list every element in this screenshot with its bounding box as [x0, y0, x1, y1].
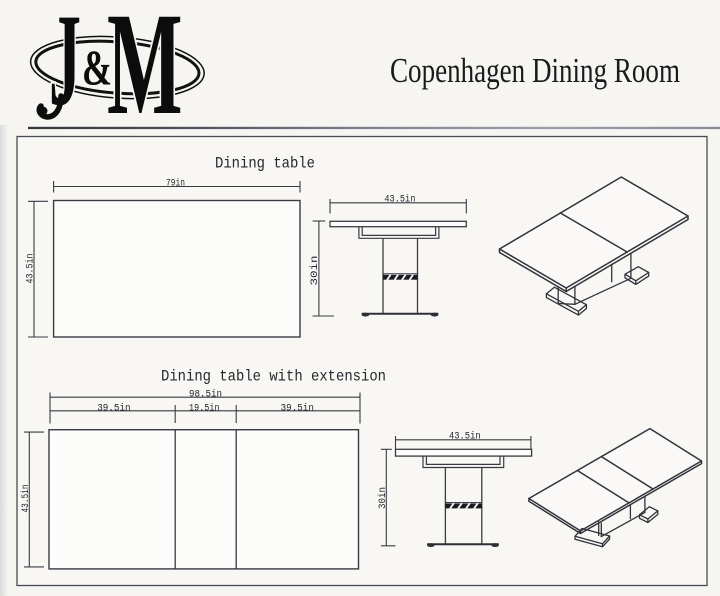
svg-text:39.5in: 39.5in: [281, 402, 314, 414]
svg-text:M: M: [107, 0, 183, 145]
svg-text:43.5in: 43.5in: [20, 485, 32, 513]
svg-text:43.5in: 43.5in: [384, 194, 415, 206]
svg-text:98.5in: 98.5in: [189, 389, 222, 401]
svg-text:Dining table with extension: Dining table with extension: [161, 368, 386, 386]
svg-text:19.5in: 19.5in: [189, 402, 220, 414]
svg-text:Copenhagen Dining Room: Copenhagen Dining Room: [390, 51, 680, 90]
svg-text:30in: 30in: [377, 487, 389, 509]
svg-text:79in: 79in: [166, 177, 185, 189]
svg-text:30in: 30in: [309, 256, 321, 286]
svg-text:Dining table: Dining table: [215, 155, 315, 173]
svg-text:39.5in: 39.5in: [97, 402, 130, 414]
svg-text:43.5in: 43.5in: [25, 254, 37, 284]
svg-text:43.5in: 43.5in: [449, 430, 481, 442]
